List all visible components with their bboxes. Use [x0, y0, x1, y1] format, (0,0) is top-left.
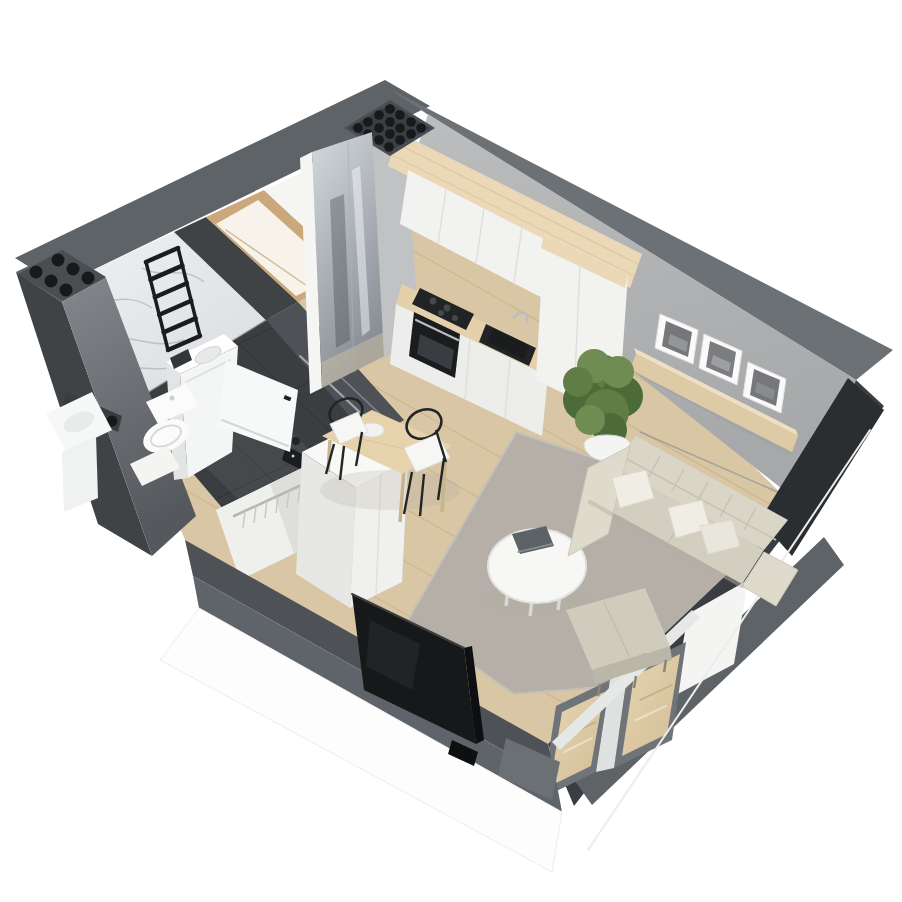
burner	[430, 298, 437, 305]
vent-hole	[385, 104, 395, 114]
vent-hole	[30, 266, 43, 279]
floorplan-render: Isometric 3D floor plan render of a stud…	[0, 0, 902, 902]
vent-hole	[52, 254, 65, 267]
vent-hole	[384, 142, 394, 152]
shower-dial	[292, 455, 295, 458]
flush-button	[170, 396, 175, 401]
vent-hole	[60, 284, 73, 297]
vent-hole	[395, 110, 405, 120]
vent-hole	[416, 123, 426, 133]
burner	[452, 315, 458, 321]
shower-head-icon	[292, 437, 300, 445]
vent-hole	[374, 110, 384, 120]
vent-hole	[82, 272, 95, 285]
vent-hole	[374, 123, 384, 133]
foliage	[563, 367, 593, 397]
mirror-wardrobe	[300, 132, 384, 394]
vent-hole	[385, 129, 395, 139]
vent-hole	[406, 117, 416, 127]
burner	[438, 310, 444, 316]
vent-hole	[363, 117, 373, 127]
vent-hole	[353, 123, 363, 133]
foliage	[575, 405, 605, 435]
vent-hole	[45, 275, 58, 288]
foliage	[602, 356, 634, 388]
vent-hole	[385, 117, 395, 127]
vent-hole	[67, 263, 80, 276]
vent-hole	[374, 135, 384, 145]
vent-hole	[395, 135, 405, 145]
burner	[444, 305, 451, 312]
vent-hole	[395, 123, 405, 133]
vent-hole	[406, 129, 416, 139]
floorplan-svg: Isometric 3D floor plan render of a stud…	[0, 0, 902, 902]
